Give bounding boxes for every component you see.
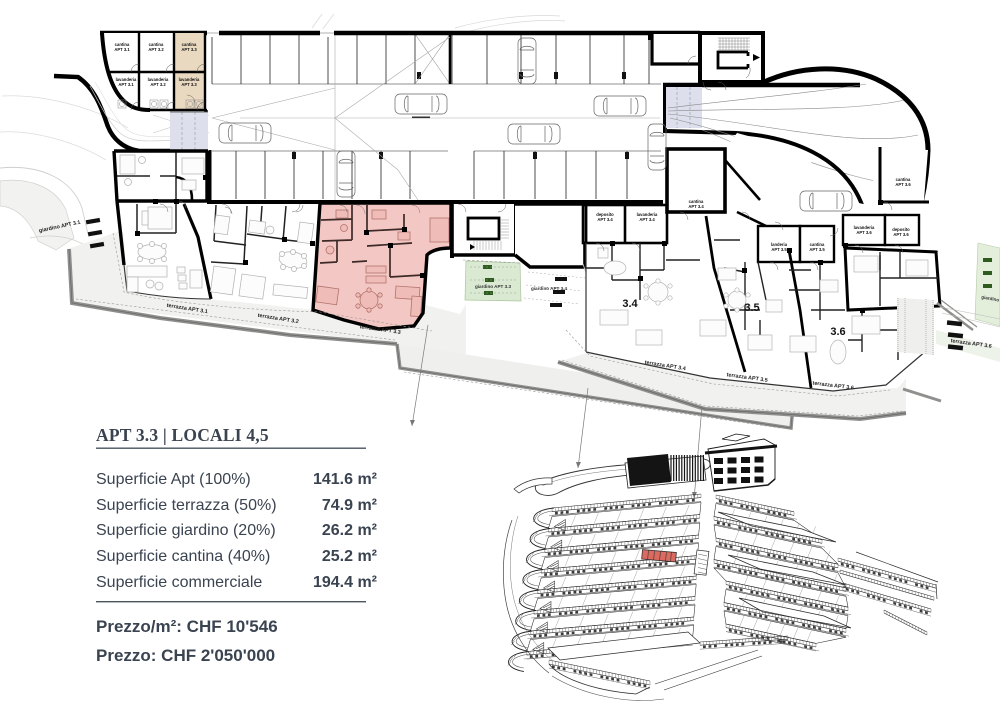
svg-text:APT 3.4: APT 3.4 <box>597 217 613 222</box>
svg-text:Prezzo/m²: CHF 10'546: Prezzo/m²: CHF 10'546 <box>96 617 278 636</box>
svg-text:APT 3.3 | LOCALI 4,5: APT 3.3 | LOCALI 4,5 <box>96 425 269 445</box>
svg-text:25.2 m²: 25.2 m² <box>322 548 377 565</box>
svg-text:APT 3.6: APT 3.6 <box>893 232 909 237</box>
svg-text:giardino APT 3.4: giardino APT 3.4 <box>531 286 568 291</box>
svg-text:APT 3.2: APT 3.2 <box>150 82 166 87</box>
svg-text:Superficie giardino (20%): Superficie giardino (20%) <box>96 522 276 539</box>
svg-text:giardino APT 3.3: giardino APT 3.3 <box>475 284 512 289</box>
svg-text:APT 3.1: APT 3.1 <box>118 82 134 87</box>
svg-text:APT 3.3: APT 3.3 <box>181 82 197 87</box>
svg-text:APT 3.2: APT 3.2 <box>148 47 164 52</box>
svg-text:APT 3.5: APT 3.5 <box>809 247 825 252</box>
svg-text:Superficie terrazza (50%): Superficie terrazza (50%) <box>96 497 277 514</box>
svg-text:194.4 m²: 194.4 m² <box>313 574 377 591</box>
svg-text:APT 3.4: APT 3.4 <box>639 217 655 222</box>
svg-text:3.6: 3.6 <box>830 326 845 338</box>
svg-text:Superficie cantina (40%): Superficie cantina (40%) <box>96 548 270 565</box>
svg-text:74.9 m²: 74.9 m² <box>322 497 377 514</box>
svg-text:3.4: 3.4 <box>622 298 638 310</box>
svg-text:3.5: 3.5 <box>744 302 759 314</box>
svg-text:APT 3.6: APT 3.6 <box>856 230 872 235</box>
svg-text:APT 3.5: APT 3.5 <box>771 247 787 252</box>
svg-text:Superficie commerciale: Superficie commerciale <box>96 574 262 591</box>
svg-text:APT 3.3: APT 3.3 <box>181 47 197 52</box>
svg-text:26.2 m²: 26.2 m² <box>322 522 377 539</box>
svg-text:APT 3.4: APT 3.4 <box>688 204 704 209</box>
svg-text:APT 3.1: APT 3.1 <box>114 47 130 52</box>
svg-text:Prezzo: CHF 2'050'000: Prezzo: CHF 2'050'000 <box>96 646 275 665</box>
svg-text:APT 3.6: APT 3.6 <box>895 182 911 187</box>
svg-text:141.6 m²: 141.6 m² <box>313 471 377 488</box>
svg-text:Superficie Apt (100%): Superficie Apt (100%) <box>96 471 251 488</box>
